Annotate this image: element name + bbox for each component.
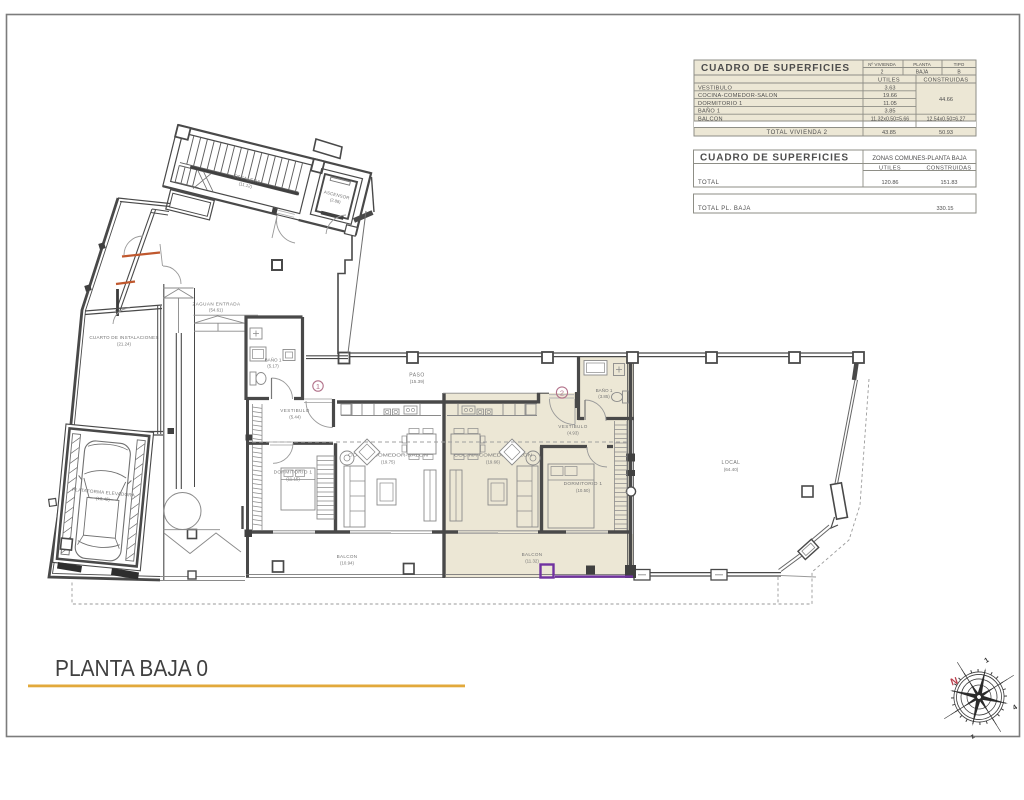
svg-text:(11.32): (11.32) — [525, 559, 539, 564]
svg-text:330.15: 330.15 — [936, 206, 953, 212]
svg-text:BAÑO 1: BAÑO 1 — [596, 387, 613, 393]
svg-text:Nº VIVIENDA: Nº VIVIENDA — [868, 62, 897, 67]
svg-text:UTILES: UTILES — [879, 165, 901, 171]
svg-text:ZONAS COMUNES-PLANTA BAJA: ZONAS COMUNES-PLANTA BAJA — [872, 156, 966, 162]
svg-text:(10.50): (10.50) — [576, 488, 590, 493]
svg-text:11.32x0.50=5.66: 11.32x0.50=5.66 — [871, 117, 910, 123]
svg-text:PLANTA BAJA 0: PLANTA BAJA 0 — [55, 655, 208, 681]
svg-text:N: N — [949, 676, 959, 689]
svg-text:2: 2 — [881, 70, 884, 76]
svg-text:1: 1 — [983, 657, 990, 665]
svg-text:CONSTRUIDAS: CONSTRUIDAS — [923, 77, 968, 83]
svg-text:3.63: 3.63 — [885, 85, 896, 91]
svg-text:UTILES: UTILES — [878, 77, 900, 83]
svg-text:43.85: 43.85 — [882, 130, 896, 136]
svg-text:TOTAL VIVIENDA 2: TOTAL VIVIENDA 2 — [767, 130, 828, 136]
svg-text:LOCAL: LOCAL — [722, 460, 741, 466]
svg-text:(5.17): (5.17) — [267, 364, 279, 369]
svg-text:(54.61): (54.61) — [209, 308, 223, 313]
svg-text:PLANTA: PLANTA — [913, 62, 931, 67]
svg-text:(21.24): (21.24) — [117, 342, 131, 347]
svg-text:12.54x0.50=6.27: 12.54x0.50=6.27 — [927, 117, 966, 123]
svg-text:(10.94): (10.94) — [340, 561, 354, 566]
svg-text:151.83: 151.83 — [940, 180, 957, 186]
svg-text:(5.44): (5.44) — [289, 415, 301, 420]
svg-text:VESTIBULO: VESTIBULO — [698, 85, 732, 91]
svg-text:TOTAL: TOTAL — [698, 180, 719, 186]
svg-text:CUADRO DE SUPERFICIES: CUADRO DE SUPERFICIES — [701, 63, 850, 74]
svg-text:BAJA: BAJA — [916, 70, 929, 76]
svg-text:BAÑO 1: BAÑO 1 — [265, 357, 282, 363]
svg-text:BALCON: BALCON — [698, 117, 723, 123]
svg-text:19.66: 19.66 — [883, 93, 897, 99]
svg-text:4: 4 — [1012, 704, 1019, 712]
svg-text:CONSTRUIDAS: CONSTRUIDAS — [926, 165, 971, 171]
svg-text:COCINA-COMEDOR-SALON: COCINA-COMEDOR-SALON — [698, 93, 778, 99]
svg-text:BALCON: BALCON — [337, 554, 358, 559]
svg-text:TIPO: TIPO — [954, 62, 965, 67]
svg-text:CUADRO DE SUPERFICIES: CUADRO DE SUPERFICIES — [700, 153, 849, 164]
svg-text:(15.39): (15.39) — [410, 379, 425, 384]
svg-text:DORMITORIO 1: DORMITORIO 1 — [698, 101, 743, 107]
svg-text:PASO: PASO — [409, 373, 425, 379]
svg-text:50.93: 50.93 — [939, 130, 953, 136]
svg-text:DORMITORIO 1: DORMITORIO 1 — [564, 481, 603, 487]
svg-text:BALCON: BALCON — [522, 552, 543, 557]
svg-text:BAÑO 1: BAÑO 1 — [698, 108, 720, 115]
svg-text:(4.93): (4.93) — [567, 431, 579, 436]
svg-text:3.85: 3.85 — [885, 109, 896, 115]
svg-text:(19.66): (19.66) — [486, 460, 500, 465]
svg-text:120.86: 120.86 — [881, 180, 898, 186]
svg-text:44.66: 44.66 — [939, 97, 953, 103]
svg-text:VESTIBULO: VESTIBULO — [280, 408, 309, 413]
svg-text:1: 1 — [316, 382, 320, 391]
svg-text:(19.75): (19.75) — [381, 460, 395, 465]
svg-text:2: 2 — [560, 388, 564, 397]
svg-text:VESTIBULO: VESTIBULO — [558, 424, 587, 429]
svg-text:TOTAL PL. BAJA: TOTAL PL. BAJA — [698, 206, 751, 212]
svg-text:ZAGUAN ENTRADA: ZAGUAN ENTRADA — [193, 302, 242, 307]
svg-text:(3.85): (3.85) — [598, 394, 610, 399]
svg-text:(11.15): (11.15) — [286, 477, 300, 482]
svg-text:11.05: 11.05 — [883, 101, 897, 107]
svg-text:CUARTO DE INSTALACIONES: CUARTO DE INSTALACIONES — [89, 335, 158, 340]
svg-text:(64.40): (64.40) — [724, 467, 739, 472]
